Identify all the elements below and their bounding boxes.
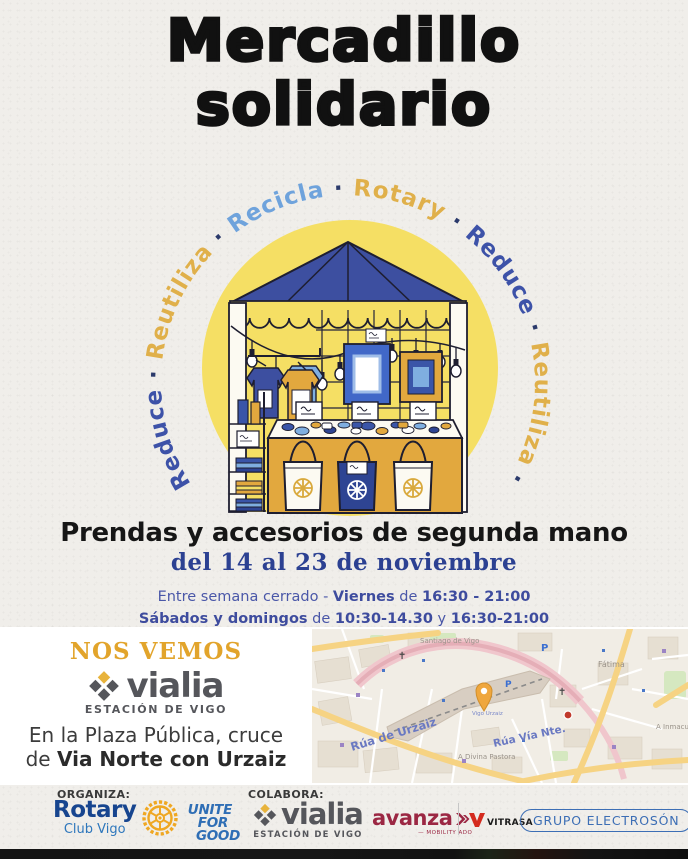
vialia-logo-icon bbox=[253, 803, 277, 827]
footer-divider bbox=[458, 803, 459, 835]
venue-band: NOS VEMOS vialia ESTACIÓN DE VIGO En la … bbox=[0, 627, 688, 785]
yellow-circle bbox=[202, 220, 498, 516]
venue-headline: NOS VEMOS bbox=[0, 638, 312, 665]
svg-text:P: P bbox=[505, 680, 512, 690]
poster-title: Mercadillo solidario bbox=[0, 10, 688, 138]
vialia-logo-subtext: ESTACIÓN DE VIGO bbox=[0, 703, 312, 716]
location-map: P P ✝ ✝ bbox=[312, 629, 688, 783]
map-label-santiago: Santiago de Vigo bbox=[420, 637, 479, 645]
tent-post-left bbox=[229, 303, 246, 512]
venue-info: NOS VEMOS vialia ESTACIÓN DE VIGO En la … bbox=[0, 627, 312, 785]
clothes-rack bbox=[247, 348, 323, 420]
vialia-logo-text: vialia bbox=[126, 669, 223, 703]
map-label-station: Vigo Urzaiz bbox=[472, 711, 503, 717]
market-counter bbox=[268, 402, 462, 513]
venue-address-line-1: En la Plaza Pública, cruce bbox=[0, 723, 312, 747]
rotary-club-logo: Rotary Club Vigo bbox=[53, 798, 180, 838]
tent-post-right bbox=[450, 303, 467, 512]
footer: ORGANIZA: COLABORA: Rotary Club Vigo UNI… bbox=[0, 785, 688, 849]
bottom-edge-strip bbox=[0, 849, 688, 859]
tent-valance bbox=[230, 301, 466, 328]
schedule-line-2: Sábados y domingos de 10:30-14.30 y 16:3… bbox=[0, 611, 688, 627]
map-label-divina: A Divina Pastora bbox=[458, 753, 515, 761]
rotary-logo-text: Rotary bbox=[53, 798, 136, 822]
title-line-1: Mercadillo bbox=[0, 10, 688, 74]
vitrasa-v-icon bbox=[468, 812, 486, 828]
poster: Mercadillo solidario bbox=[0, 0, 688, 859]
venue-address-line-2: de Via Norte con Urzaiz bbox=[0, 747, 312, 771]
rotary-club-subtext: Club Vigo bbox=[64, 822, 126, 837]
grid-wall bbox=[316, 310, 450, 452]
shelf-unit bbox=[229, 392, 266, 512]
tent-roof bbox=[230, 242, 466, 303]
vialia-footer-logo: vialia ESTACIÓN DE VIGO bbox=[253, 800, 363, 840]
tote-bags bbox=[284, 442, 432, 511]
schedule-line-1: Entre semana cerrado - Viernes de 16:30 … bbox=[0, 589, 688, 605]
grupo-electroson-logo: GRUPO ELECTROSÓN bbox=[520, 809, 688, 832]
poi-dot bbox=[564, 711, 572, 719]
unite-for-good-logo: UNITE FOR GOOD bbox=[176, 804, 240, 842]
church-icon: ✝ bbox=[398, 651, 406, 662]
map-label-inmaculada: A Inmacula bbox=[656, 723, 688, 731]
map-label-fatima: Fátima bbox=[598, 660, 625, 669]
rotary-wheel-icon bbox=[140, 798, 180, 838]
church-icon: ✝ bbox=[558, 687, 566, 698]
vialia-logo-icon bbox=[88, 670, 120, 702]
title-line-2: solidario bbox=[0, 74, 688, 138]
picture-frames bbox=[344, 329, 442, 404]
string-lights bbox=[231, 326, 465, 390]
date-range: del 14 al 23 de noviembre bbox=[0, 549, 688, 576]
svg-text:P: P bbox=[541, 643, 548, 654]
subtitle: Prendas y accesorios de segunda mano bbox=[0, 518, 688, 548]
